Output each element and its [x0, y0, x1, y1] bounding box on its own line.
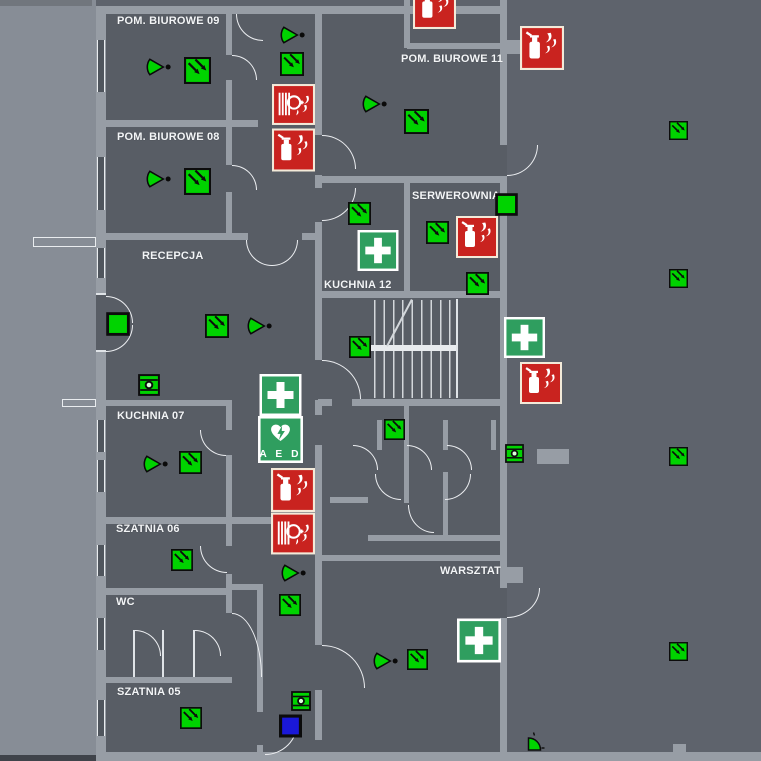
exit-point-icon[interactable]	[106, 311, 130, 337]
evacuation-direction-sign[interactable]	[669, 642, 688, 661]
aed-sign[interactable]: A E D	[258, 416, 303, 463]
fire-hose-reel-sign[interactable]	[272, 84, 315, 125]
fire-hose-reel-sign[interactable]	[271, 512, 315, 555]
fire-extinguisher-sign[interactable]	[520, 362, 562, 404]
evacuation-direction-sign[interactable]	[384, 419, 405, 440]
emergency-light-icon[interactable]	[142, 452, 169, 476]
emergency-light-icon[interactable]	[361, 92, 388, 116]
evacuation-direction-sign[interactable]	[279, 594, 301, 616]
evacuation-direction-sign[interactable]	[407, 649, 428, 670]
evacuation-direction-sign[interactable]	[669, 269, 688, 288]
evacuation-floor-plan[interactable]: POM. BIUROWE 09 POM. BIUROWE 08 POM. BIU…	[0, 0, 761, 761]
evacuation-direction-sign[interactable]	[179, 451, 202, 474]
evacuation-direction-sign[interactable]	[349, 336, 371, 358]
alarm-device-icon[interactable]	[138, 374, 160, 396]
evacuation-direction-sign[interactable]	[426, 221, 449, 244]
evacuation-direction-sign[interactable]	[205, 314, 229, 338]
first-aid-sign[interactable]	[457, 618, 501, 663]
evacuation-direction-sign[interactable]	[184, 168, 211, 195]
evacuation-direction-sign[interactable]	[348, 202, 371, 225]
alarm-device-icon[interactable]	[291, 691, 311, 711]
evacuation-direction-sign[interactable]	[669, 447, 688, 466]
evacuation-direction-sign[interactable]	[669, 121, 688, 140]
safety-icons-layer: A E D	[0, 0, 761, 761]
emergency-light-icon[interactable]	[145, 167, 172, 191]
alarm-device-icon[interactable]	[504, 444, 525, 463]
emergency-light-icon[interactable]	[145, 55, 172, 79]
emergency-light-icon[interactable]	[372, 649, 399, 673]
fire-extinguisher-sign[interactable]	[271, 468, 315, 512]
first-aid-sign[interactable]	[504, 317, 545, 358]
evacuation-direction-sign[interactable]	[404, 109, 429, 134]
emergency-light-icon[interactable]	[279, 23, 306, 47]
evacuation-direction-sign[interactable]	[280, 52, 304, 76]
fire-extinguisher-sign[interactable]	[272, 128, 315, 172]
evacuation-direction-sign[interactable]	[180, 707, 202, 729]
emergency-light-icon[interactable]	[280, 561, 307, 585]
svg-text:A E D: A E D	[259, 449, 301, 460]
exit-light-icon[interactable]	[525, 731, 545, 753]
fire-extinguisher-sign[interactable]	[413, 0, 456, 29]
equipment-blue-icon[interactable]	[279, 714, 302, 738]
first-aid-sign[interactable]	[258, 374, 303, 416]
fire-extinguisher-sign[interactable]	[520, 26, 564, 70]
evacuation-direction-sign[interactable]	[184, 57, 211, 84]
fire-extinguisher-sign[interactable]	[456, 215, 498, 259]
emergency-light-icon[interactable]	[246, 314, 273, 338]
evacuation-direction-sign[interactable]	[466, 272, 489, 295]
evacuation-direction-sign[interactable]	[171, 549, 193, 571]
exit-point-icon[interactable]	[495, 193, 518, 216]
first-aid-sign[interactable]	[357, 230, 399, 271]
